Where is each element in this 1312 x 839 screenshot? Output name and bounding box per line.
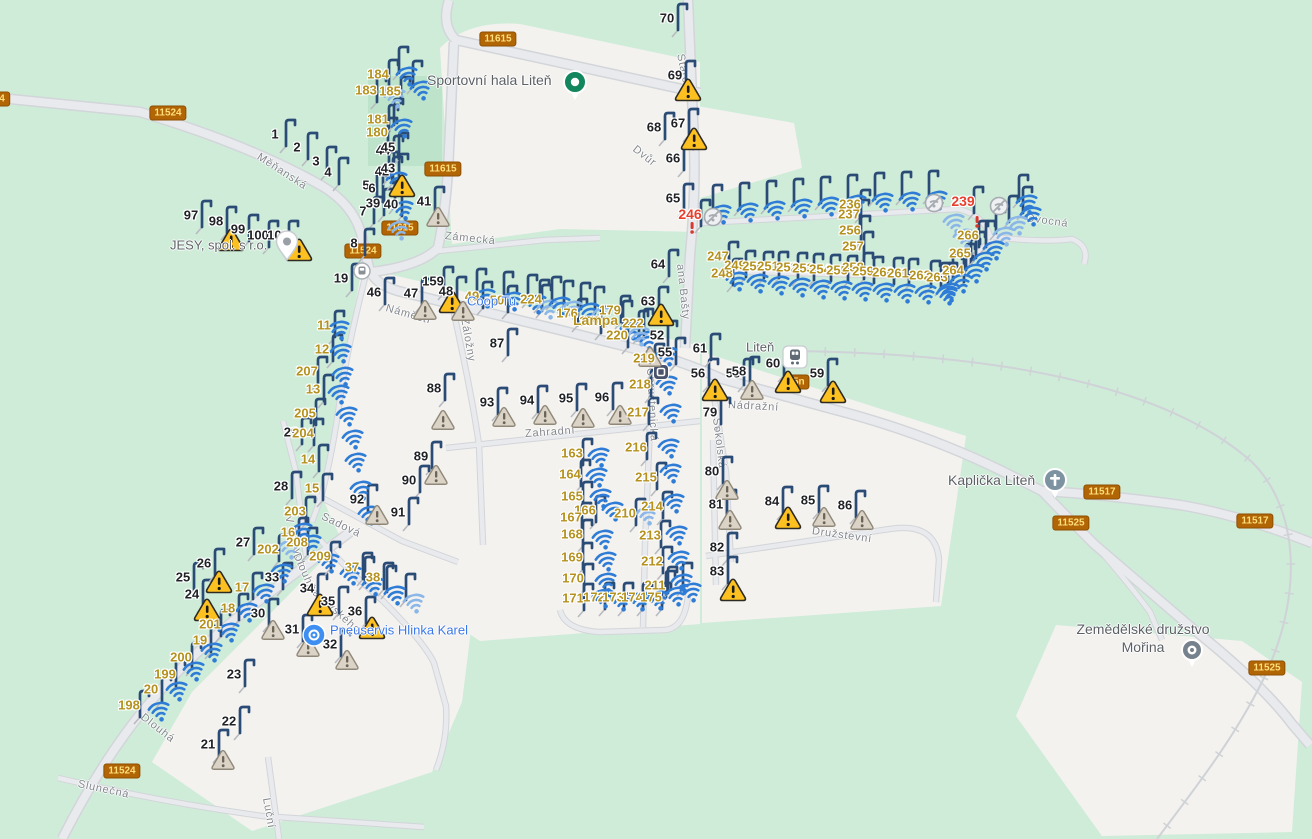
lamp-number[interactable]: 13 <box>306 382 320 397</box>
lamp-number[interactable]: 82 <box>710 540 724 555</box>
lamp-number[interactable]: 214 <box>641 499 663 514</box>
lamp-number[interactable]: 55 <box>658 345 672 360</box>
lamp-number[interactable]: 79 <box>703 405 717 420</box>
poi-label[interactable]: Lampa <box>573 312 618 328</box>
lamp-number[interactable]: 24 <box>185 587 199 602</box>
wifi-signal-icon[interactable] <box>937 283 963 305</box>
lamp-number[interactable]: 168 <box>561 527 583 542</box>
warning-minor-icon[interactable] <box>413 299 437 321</box>
road-shield: 11524 <box>103 764 140 779</box>
lamp-number[interactable]: 202 <box>257 542 279 557</box>
tire-service-pin-icon[interactable] <box>302 623 326 647</box>
lamp-number[interactable]: 207 <box>296 364 318 379</box>
wifi-signal-icon[interactable] <box>659 464 685 486</box>
lamp-number[interactable]: 38 <box>366 570 380 585</box>
wifi-signal-icon[interactable] <box>662 494 688 516</box>
wifi-signal-icon[interactable] <box>670 574 696 596</box>
road-shield: 4 <box>0 92 10 107</box>
wifi-signal-icon[interactable] <box>665 526 691 548</box>
lamp-number[interactable]: 37 <box>345 560 359 575</box>
lamp-number[interactable]: 87 <box>490 336 504 351</box>
lamp-number[interactable]: 69 <box>668 68 682 83</box>
lamp-number[interactable]: 80 <box>705 464 719 479</box>
bus-stop-icon[interactable] <box>353 262 371 280</box>
warning-minor-icon[interactable] <box>850 509 874 531</box>
place-pin-icon[interactable] <box>275 230 299 262</box>
lamp-number[interactable]: 19 <box>334 271 348 286</box>
lamp-number[interactable]: 99 <box>231 222 245 237</box>
lamp-number[interactable]: 21 <box>201 737 215 752</box>
lamp-number[interactable]: 11 <box>317 318 331 333</box>
lamp-number[interactable]: 85 <box>801 493 815 508</box>
lamp-number[interactable]: 97 <box>184 208 198 223</box>
chapel-pin-icon[interactable] <box>1042 468 1068 500</box>
lamp-number[interactable]: 261 <box>887 266 909 281</box>
warning-alert-icon[interactable] <box>702 378 729 403</box>
road-shield: 11517 <box>1236 514 1273 529</box>
warning-minor-icon[interactable] <box>740 379 764 401</box>
lamp-number[interactable]: 257 <box>842 239 864 254</box>
lamp-number[interactable]: 61 <box>693 341 707 356</box>
lamp-number[interactable]: 70 <box>660 11 674 26</box>
warning-alert-icon[interactable] <box>389 174 416 199</box>
wifi-off-icon[interactable] <box>989 196 1009 216</box>
poi-label[interactable]: Zemědělské družstvo Mořina <box>1058 620 1228 656</box>
lamp-number[interactable]: 256 <box>839 223 861 238</box>
warning-minor-icon[interactable] <box>718 509 742 531</box>
road-shield: 11525 <box>1248 661 1285 676</box>
lamp-number[interactable]: 45 <box>381 140 395 155</box>
lamp-number[interactable]: 208 <box>286 535 308 550</box>
lamp-number[interactable]: 94 <box>520 393 534 408</box>
poi-label[interactable]: Liteň <box>746 340 774 355</box>
lamp-number[interactable]: 200 <box>170 650 192 665</box>
lamp-number[interactable]: 91 <box>391 505 405 520</box>
lamp-number[interactable]: 27 <box>236 535 250 550</box>
warning-minor-icon[interactable] <box>426 206 450 228</box>
lamp-number[interactable]: 215 <box>635 470 657 485</box>
warning-alert-icon[interactable] <box>206 570 233 595</box>
wifi-signal-icon[interactable] <box>871 193 897 215</box>
wifi-signal-icon[interactable] <box>402 594 428 616</box>
lamp-number[interactable]: 199 <box>154 667 176 682</box>
lamp-number[interactable]: 2 <box>293 140 300 155</box>
road-shield: 11524 <box>149 106 186 121</box>
warning-alert-icon[interactable] <box>820 380 847 405</box>
lamp-number[interactable]: 246 <box>678 206 701 222</box>
lamp-number[interactable]: 46 <box>367 285 381 300</box>
wifi-signal-icon[interactable] <box>763 201 789 223</box>
lamp-number[interactable]: 65 <box>666 191 680 206</box>
lamp-number[interactable]: 18 <box>221 601 235 616</box>
lamp-number[interactable]: 58 <box>732 364 746 379</box>
lamp-number[interactable]: 159 <box>422 274 444 289</box>
lamp-number[interactable]: 41 <box>417 194 431 209</box>
lamp-number[interactable]: 164 <box>559 467 581 482</box>
lamp-number[interactable]: 25 <box>176 570 190 585</box>
sports-hall-pin-icon[interactable] <box>562 70 588 102</box>
lamp-number[interactable]: 183 <box>355 83 377 98</box>
lamp-number[interactable]: 36 <box>348 604 362 619</box>
lamp-number[interactable]: 3 <box>312 154 319 169</box>
lamp-number[interactable]: 167 <box>560 510 582 525</box>
lamp-number[interactable]: 204 <box>292 426 314 441</box>
lamp-pole-icon[interactable] <box>331 154 353 194</box>
lamp-number[interactable]: 86 <box>838 498 852 513</box>
lamp-number[interactable]: 15 <box>305 481 319 496</box>
warning-minor-icon[interactable] <box>261 619 285 641</box>
lamp-number[interactable]: 219 <box>633 351 655 366</box>
lamp-number[interactable]: 63 <box>641 294 655 309</box>
lamp-number[interactable]: 169 <box>561 550 583 565</box>
lamp-number[interactable]: 163 <box>561 446 583 461</box>
warning-minor-icon[interactable] <box>335 649 359 671</box>
lamp-number[interactable]: 19 <box>193 633 207 648</box>
lamp-number[interactable]: 265 <box>949 246 971 261</box>
lamp-number[interactable]: 12 <box>315 342 329 357</box>
lamp-number[interactable]: 90 <box>402 473 416 488</box>
lamp-number[interactable]: 23 <box>227 667 241 682</box>
lamp-number[interactable]: 213 <box>639 528 661 543</box>
warning-minor-icon[interactable] <box>812 506 836 528</box>
wifi-off-icon[interactable] <box>703 207 723 227</box>
wifi-off-icon[interactable] <box>924 193 944 213</box>
lamp-number[interactable]: 205 <box>294 406 316 421</box>
lamp-number[interactable]: 17 <box>235 580 249 595</box>
wifi-signal-icon[interactable] <box>790 199 816 221</box>
lamp-number[interactable]: 212 <box>641 554 663 569</box>
road-shield: 11615 <box>424 162 461 177</box>
lamp-number[interactable]: 81 <box>709 497 723 512</box>
lamp-number[interactable]: 96 <box>595 390 609 405</box>
wifi-signal-icon[interactable] <box>898 192 924 214</box>
road-shield: 11525 <box>1052 516 1089 531</box>
wifi-signal-icon[interactable] <box>657 439 683 461</box>
lamp-number[interactable]: 98 <box>209 214 223 229</box>
map-canvas[interactable]: 1152411524115241161511615116151151711517… <box>0 0 1312 839</box>
lamp-number[interactable]: 93 <box>480 395 494 410</box>
lamp-number[interactable]: 83 <box>710 564 724 579</box>
lamp-number[interactable]: 14 <box>301 452 315 467</box>
wifi-signal-icon[interactable] <box>736 203 762 225</box>
lamp-number[interactable]: 92 <box>350 492 364 507</box>
lamp-number[interactable]: 259 <box>852 264 874 279</box>
lamp-number[interactable]: 203 <box>284 504 306 519</box>
lamp-number[interactable]: 165 <box>561 489 583 504</box>
poi-label[interactable]: JESY, spol. s r.o. <box>170 238 267 253</box>
poi-label[interactable]: Coop Tu <box>467 294 516 309</box>
lamp-number[interactable]: 33 <box>265 570 279 585</box>
road-shield: 11615 <box>479 32 516 47</box>
lamp-number[interactable]: 31 <box>285 622 299 637</box>
lamp-number[interactable]: 1 <box>271 127 278 142</box>
wifi-signal-icon[interactable] <box>341 430 367 452</box>
lamp-number[interactable]: 40 <box>384 197 398 212</box>
lamp-number[interactable]: 88 <box>427 381 441 396</box>
train-station-icon[interactable] <box>782 345 808 369</box>
lamp-number[interactable]: 56 <box>691 366 705 381</box>
lamp-number[interactable]: 237 <box>838 207 860 222</box>
lamp-number[interactable]: 4 <box>324 165 331 180</box>
poi-label[interactable]: Kaplička Liteň <box>948 472 1035 488</box>
lamp-number[interactable]: 68 <box>647 120 661 135</box>
lamp-number[interactable]: 22 <box>222 714 236 729</box>
lamp-number[interactable]: 95 <box>559 391 573 406</box>
lamp-number[interactable]: 184 <box>367 67 389 82</box>
warning-minor-icon[interactable] <box>492 406 516 428</box>
wifi-signal-icon[interactable] <box>335 407 361 429</box>
lamp-number[interactable]: 181 <box>367 112 389 127</box>
warning-minor-icon[interactable] <box>365 504 389 526</box>
lamp-number[interactable]: 59 <box>810 366 824 381</box>
warning-minor-icon[interactable] <box>571 407 595 429</box>
lamp-number[interactable]: 30 <box>251 606 265 621</box>
lamp-number[interactable]: 209 <box>309 549 331 564</box>
poi-label[interactable]: Sportovní hala Liteň <box>427 72 552 88</box>
lamp-number[interactable]: 217 <box>627 405 649 420</box>
warning-alert-icon[interactable] <box>775 506 802 531</box>
warning-minor-icon[interactable] <box>211 749 235 771</box>
lamp-number[interactable]: 222 <box>622 316 644 331</box>
lamp-number[interactable]: 28 <box>274 479 288 494</box>
lamp-number[interactable]: 201 <box>199 617 221 632</box>
wifi-signal-icon[interactable] <box>329 344 355 366</box>
lamp-number[interactable]: 171 <box>562 591 584 606</box>
lamp-number[interactable]: 67 <box>671 116 685 131</box>
wifi-signal-icon[interactable] <box>667 551 693 573</box>
lamp-number[interactable]: 39 <box>366 196 380 211</box>
alert-pin-icon[interactable] <box>687 221 697 235</box>
warning-alert-icon[interactable] <box>720 578 747 603</box>
lamp-number[interactable]: 210 <box>614 506 636 521</box>
lamp-number[interactable]: 198 <box>118 698 140 713</box>
lamp-number[interactable]: 6 <box>368 181 375 196</box>
road-shield: 11517 <box>1083 485 1120 500</box>
lamp-number[interactable]: 180 <box>366 125 388 140</box>
wifi-signal-icon[interactable] <box>344 453 370 475</box>
lamp-number[interactable]: 66 <box>666 151 680 166</box>
lamp-number[interactable]: 218 <box>629 377 651 392</box>
lamp-number[interactable]: 211 <box>645 578 666 593</box>
lamp-number[interactable]: 43 <box>381 161 395 176</box>
lamp-number[interactable]: 216 <box>625 440 647 455</box>
lamp-number[interactable]: 239 <box>951 193 974 209</box>
lamp-number[interactable]: 34 <box>300 581 314 596</box>
wifi-signal-icon[interactable] <box>327 385 353 407</box>
warning-alert-icon[interactable] <box>775 370 802 395</box>
lamp-number[interactable]: 84 <box>765 494 779 509</box>
wifi-signal-icon[interactable] <box>390 119 416 141</box>
lamp-number[interactable]: 224 <box>520 292 542 307</box>
wifi-signal-icon[interactable] <box>387 221 413 243</box>
lamp-number[interactable]: 52 <box>650 328 664 343</box>
wifi-signal-icon[interactable] <box>659 404 685 426</box>
lamp-pole-icon[interactable] <box>357 225 379 265</box>
warning-minor-icon[interactable] <box>431 409 455 431</box>
lamp-number[interactable]: 8 <box>350 236 357 251</box>
lamp-number[interactable]: 64 <box>651 257 665 272</box>
wifi-signal-icon[interactable] <box>591 530 617 552</box>
lamp-number[interactable]: 185 <box>379 84 401 99</box>
lamp-number[interactable]: 170 <box>562 571 584 586</box>
lamp-number[interactable]: 35 <box>321 594 335 609</box>
poi-label[interactable]: Pneuservis Hlinka Karel <box>330 623 468 638</box>
lamp-number[interactable]: 266 <box>957 228 979 243</box>
warning-minor-icon[interactable] <box>533 404 557 426</box>
lamp-number[interactable]: 264 <box>942 263 964 278</box>
lamp-number[interactable]: 60 <box>766 356 780 371</box>
lamp-number[interactable]: 20 <box>144 682 158 697</box>
lamp-number[interactable]: 89 <box>414 449 428 464</box>
lamp-number[interactable]: 47 <box>404 286 418 301</box>
lamp-number[interactable]: 26 <box>197 556 211 571</box>
warning-minor-icon[interactable] <box>424 464 448 486</box>
